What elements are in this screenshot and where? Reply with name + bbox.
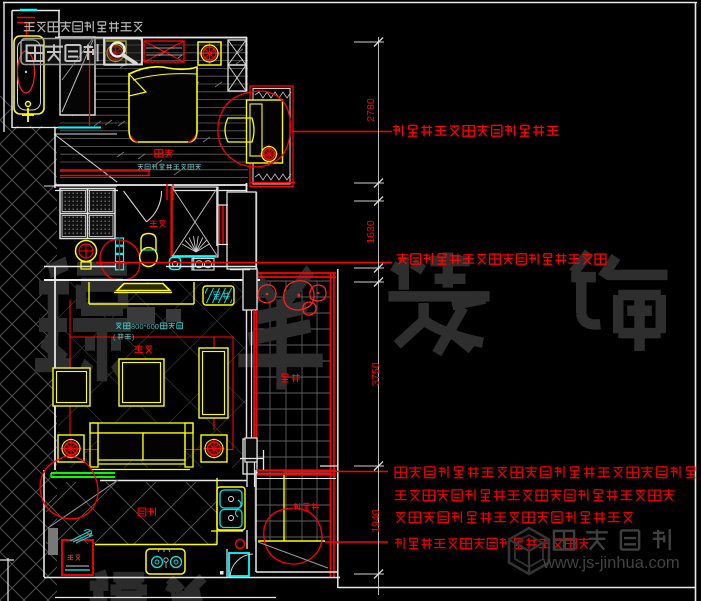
svg-text:800*600: 800*600 xyxy=(131,322,159,331)
svg-text:1940: 1940 xyxy=(370,509,382,533)
svg-text:www.js-jinhua.com: www.js-jinhua.com xyxy=(542,554,680,572)
svg-text:3750: 3750 xyxy=(370,362,382,386)
svg-text:): ) xyxy=(132,335,134,342)
svg-text:1630: 1630 xyxy=(365,220,377,244)
svg-text:2780: 2780 xyxy=(365,98,377,122)
